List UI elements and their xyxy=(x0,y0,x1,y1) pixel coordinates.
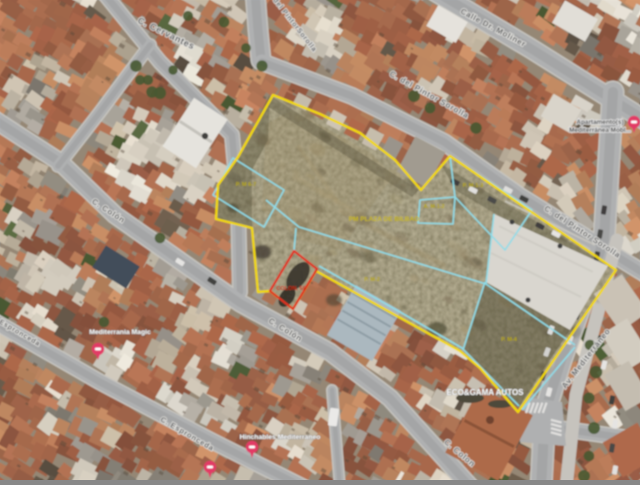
svg-text:A. M-1-2: A. M-1-2 xyxy=(424,204,445,210)
svg-text:P. M-4: P. M-4 xyxy=(501,337,518,343)
svg-text:PM PLAZA DE BILBAO: PM PLAZA DE BILBAO xyxy=(349,216,420,223)
svg-text:COLON, 55: COLON, 55 xyxy=(276,286,306,292)
svg-text:P. M-1-3: P. M-1-3 xyxy=(463,183,484,189)
svg-text:P. M 6-7: P. M 6-7 xyxy=(236,182,256,188)
svg-text:Apartamento(s): Apartamento(s) xyxy=(576,119,623,126)
svg-text:Mediterrania Magic: Mediterrania Magic xyxy=(89,329,151,336)
svg-text:Hinchables Mediterraneo: Hinchables Mediterraneo xyxy=(240,434,321,441)
svg-text:P. M-2: P. M-2 xyxy=(364,277,380,283)
svg-text:ECO&GAMA AUTOS: ECO&GAMA AUTOS xyxy=(446,388,524,397)
svg-text:Mediterránea Mobl...: Mediterránea Mobl... xyxy=(569,127,631,134)
